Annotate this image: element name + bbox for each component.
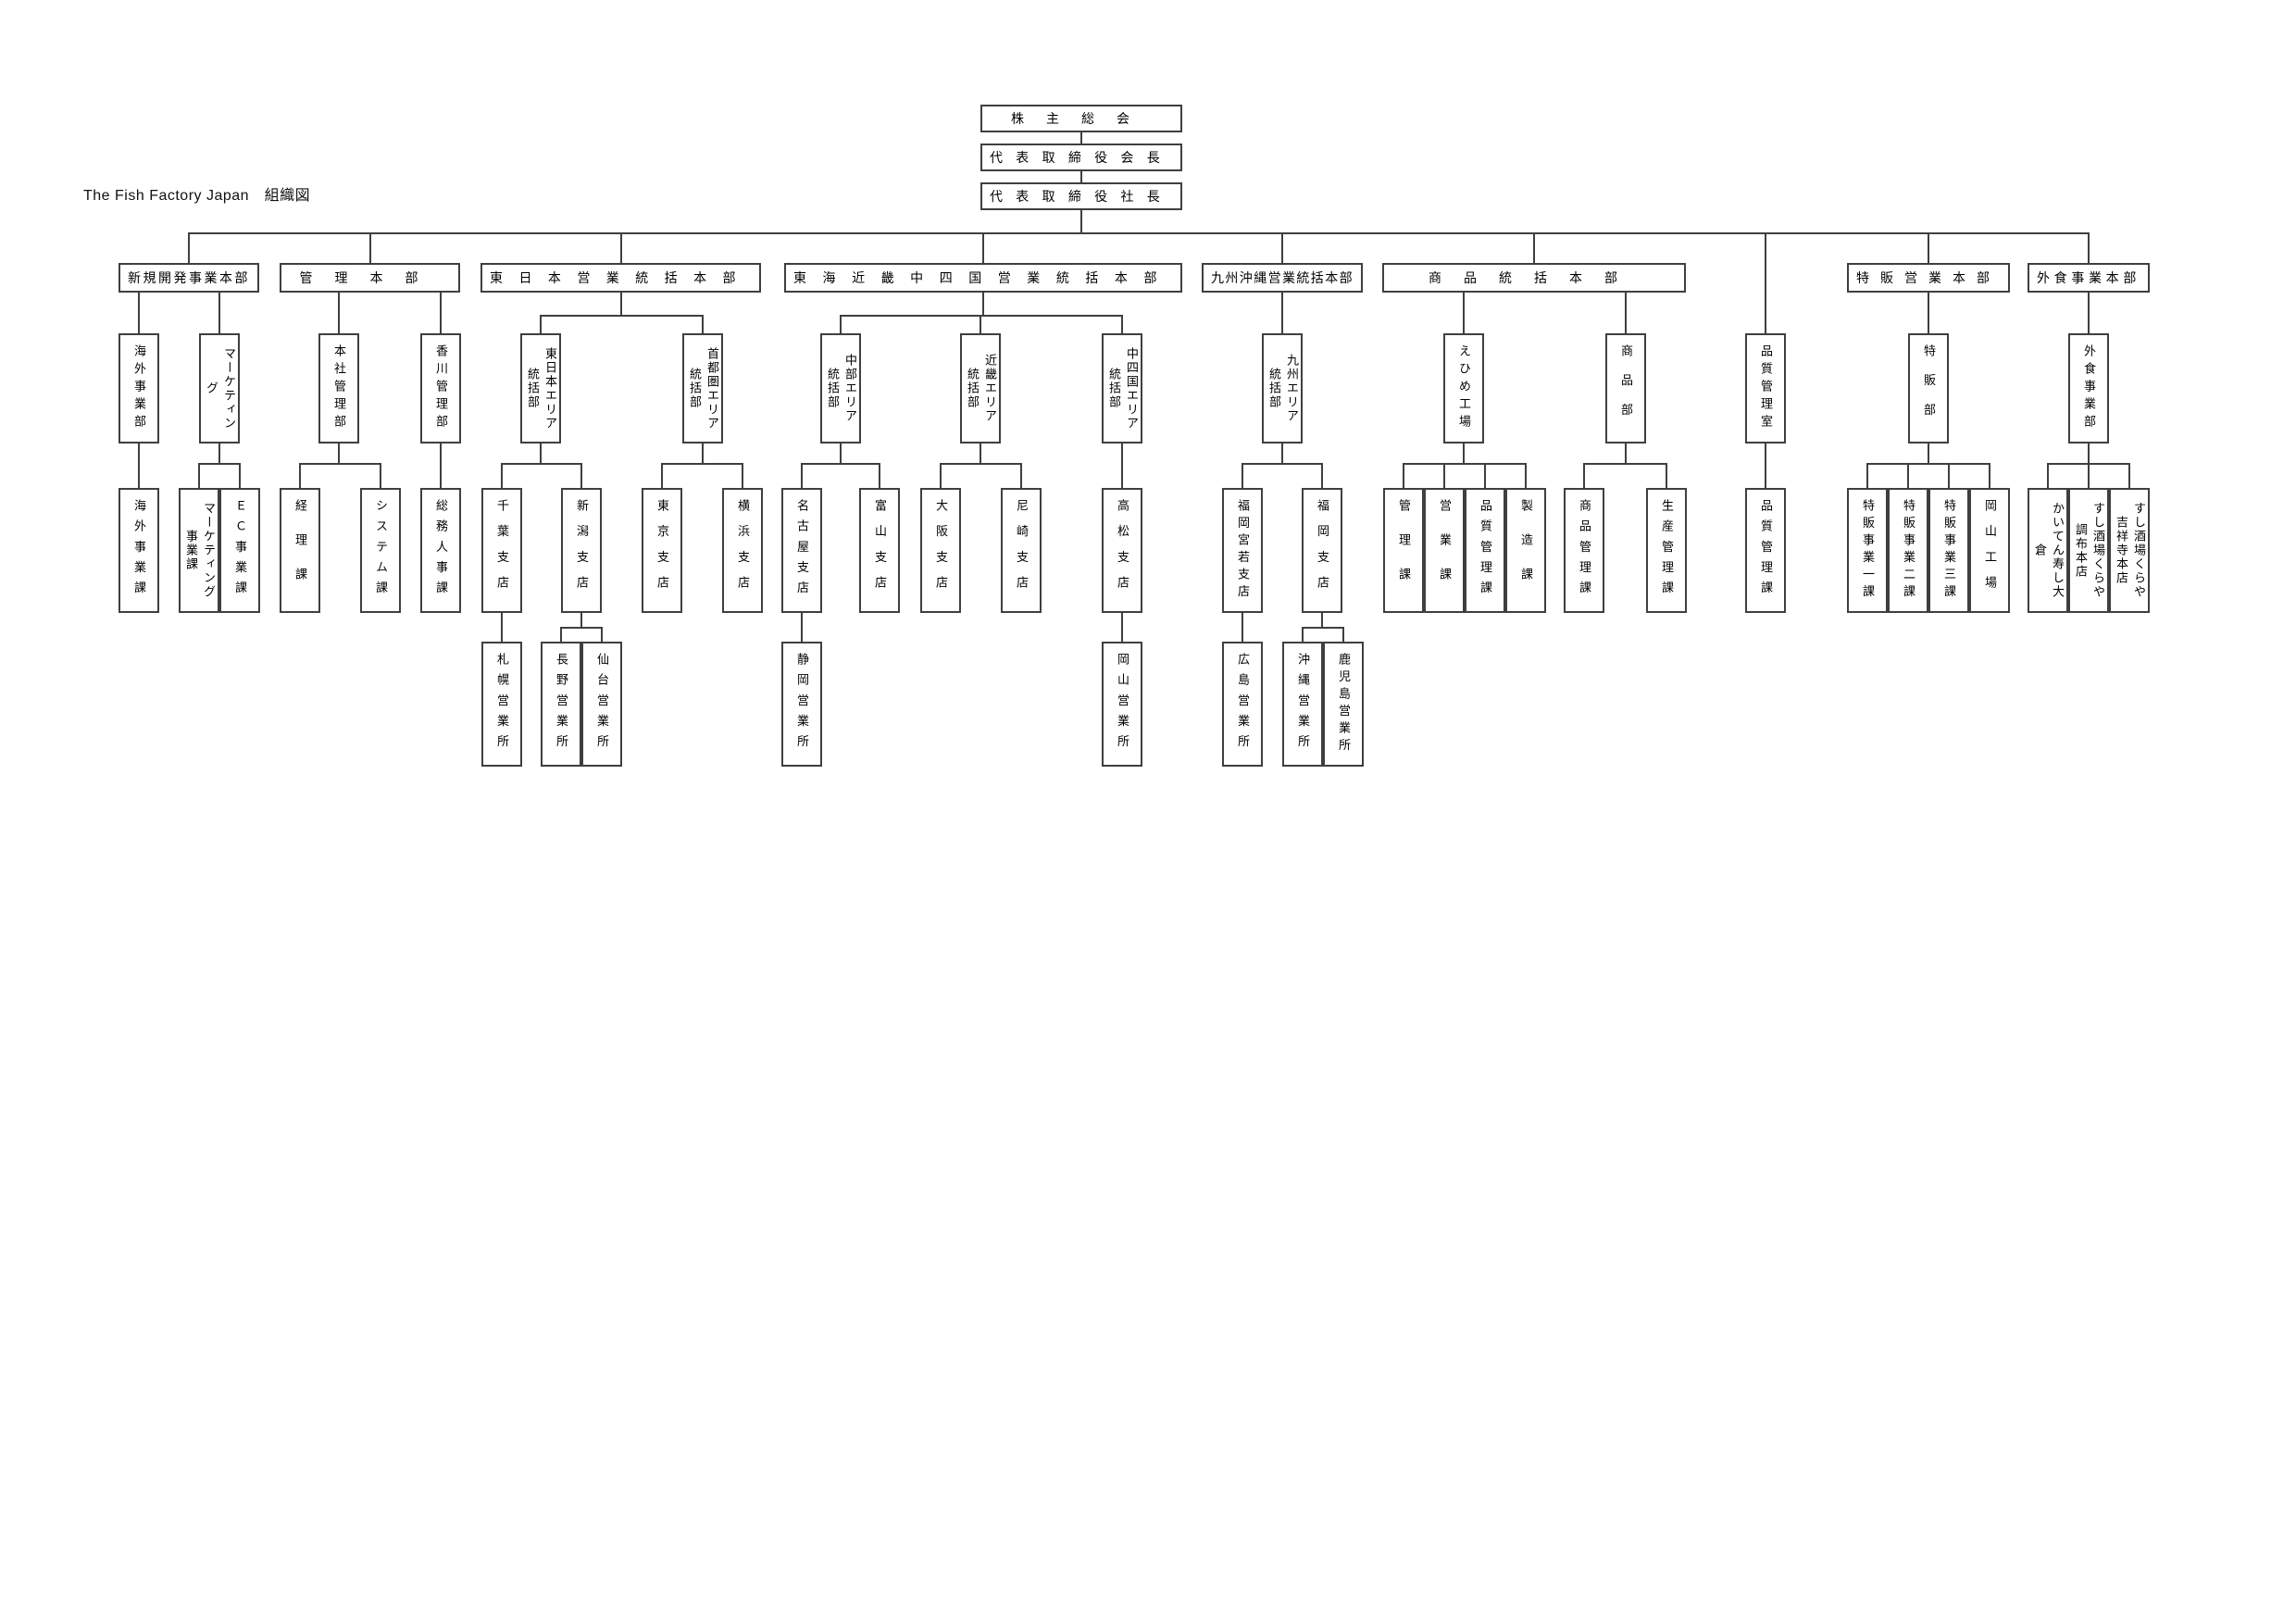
org-node-tokuhan_1ka: 特販事業一課 [1847,488,1888,613]
org-node-tokuhan_eigyo: 特販営業本部 [1847,263,2010,293]
org-node-kuraya_chofu: すし酒場くらや 調布本店 [2068,488,2109,613]
connector-line [840,443,842,464]
connector-line [299,463,381,465]
org-node-tokuhan_bu: 特販部 [1908,333,1949,443]
connector-line [1281,443,1283,464]
org-node-kaigai_ka: 海外事業課 [119,488,159,613]
connector-line [501,464,503,488]
org-node-marketing_ka: マーケティング 事業課 [179,488,219,613]
org-node-shinki: 新規開発事業本部 [119,263,259,293]
connector-line [1625,443,1627,464]
connector-line [879,464,880,488]
connector-line [1463,293,1465,333]
org-node-keiri_ka: 経理課 [280,488,320,613]
org-node-kinki_area: 近畿エリア 統括部 [960,333,1001,443]
org-node-okayama_kojo: 岡山工場 [1969,488,2010,613]
org-node-okinawa: 沖縄営業所 [1282,642,1323,767]
connector-line [1907,464,1909,488]
connector-line [2047,464,2049,488]
org-node-chubu_area: 中部エリア 統括部 [820,333,861,443]
connector-line [1242,613,1243,642]
connector-line [1625,293,1627,333]
org-node-nagoya: 名古屋支店 [781,488,822,613]
connector-line [198,463,241,465]
connector-line [620,233,622,263]
org-node-honsha_kanri: 本社管理部 [318,333,359,443]
connector-line [2088,464,2090,488]
org-node-kagawa_kanri: 香川管理部 [420,333,461,443]
org-node-sokai: 株主総会 [980,105,1182,132]
connector-line [560,628,562,642]
org-node-hinshitsu_kanri_ka: 品質管理課 [1745,488,1786,613]
connector-line [1321,464,1323,488]
connector-line [940,463,1022,465]
connector-line [1928,233,1929,263]
connector-line [801,613,803,642]
connector-line [440,293,442,333]
connector-line [188,233,190,263]
connector-line [198,464,200,488]
connector-line [580,464,582,488]
connector-line [440,443,442,488]
org-node-gaishoku_bu: 外食事業部 [2068,333,2109,443]
connector-line [980,443,981,464]
org-node-kaiten_omicho: かいてん寿し大倉 近江町店 [2028,488,2068,613]
org-node-shohin_bu: 商品部 [1605,333,1646,443]
connector-line [1080,171,1082,182]
org-node-ehime_hinshitsu_ka: 品質管理課 [1465,488,1505,613]
connector-line [560,627,603,629]
org-node-kyushu_area: 九州エリア 統括部 [1262,333,1303,443]
connector-line [1866,463,1990,465]
connector-line [801,463,880,465]
connector-line [138,443,140,488]
connector-line [620,293,622,316]
connector-line [1020,464,1022,488]
org-node-hinshitsu_shitsu: 品質管理室 [1745,333,1786,443]
org-node-kyushu_okinawa: 九州沖縄営業統括本部 [1202,263,1363,293]
connector-line [2088,233,2090,263]
connector-line [380,464,381,488]
connector-line [188,232,2090,234]
org-node-tokyo: 東京支店 [642,488,682,613]
connector-line [138,293,140,333]
connector-line [1342,628,1344,642]
connector-line [801,464,803,488]
org-node-shohin_kanri_ka: 商品管理課 [1564,488,1604,613]
connector-line [540,443,542,464]
org-node-gaishoku: 外食事業本部 [2028,263,2150,293]
connector-line [1533,233,1535,263]
connector-line [1928,443,1929,464]
connector-line [501,613,503,642]
connector-line [1403,463,1527,465]
connector-line [1403,464,1404,488]
connector-line [338,443,340,464]
connector-line [369,233,371,263]
org-node-ehime: えひめ工場 [1443,333,1484,443]
org-node-fukuoka: 福岡支店 [1302,488,1342,613]
org-node-system_ka: システム課 [360,488,401,613]
org-node-seisan_kanri_ka: 生産管理課 [1646,488,1687,613]
org-node-seizo_ka: 製造課 [1505,488,1546,613]
org-node-chiba: 千葉支店 [481,488,522,613]
org-node-niigata: 新潟支店 [561,488,602,613]
connector-line [1583,463,1667,465]
org-node-marketing_bu: マーケティング 事業部 [199,333,240,443]
org-node-toyama: 富山支店 [859,488,900,613]
connector-line [1989,464,1990,488]
connector-line [218,443,220,464]
connector-line [982,293,984,316]
org-node-osaka: 大阪支店 [920,488,961,613]
connector-line [840,315,1123,317]
connector-line [299,464,301,488]
connector-line [1281,293,1283,333]
connector-line [661,463,743,465]
connector-line [2088,443,2090,464]
org-node-ehime_eigyo_ka: 営業課 [1424,488,1465,613]
connector-line [940,464,942,488]
org-node-kagoshima: 鹿児島営業所 [1323,642,1364,767]
org-node-somu_jinji_ka: 総務人事課 [420,488,461,613]
connector-line [540,316,542,333]
connector-line [702,316,704,333]
org-chart: The Fish Factory Japan 組織図 株主総会代表取締役会長代表… [0,0,2296,1624]
connector-line [1525,464,1527,488]
connector-line [1765,443,1766,488]
org-node-sendai: 仙台営業所 [581,642,622,767]
connector-line [1443,464,1445,488]
chart-title: The Fish Factory Japan 組織図 [83,182,310,205]
connector-line [1242,464,1243,488]
connector-line [1080,210,1082,233]
org-node-hiroshima: 広島営業所 [1222,642,1263,767]
org-node-kanri: 管理本部 [280,263,460,293]
connector-line [1765,233,1766,333]
org-node-sapporo: 札幌営業所 [481,642,522,767]
org-node-shohin_tokatsu: 商品統括本部 [1382,263,1686,293]
connector-line [742,464,743,488]
org-node-kaigai_bu: 海外事業部 [119,333,159,443]
org-node-higashinihon: 東日本営業統括本部 [480,263,761,293]
connector-line [840,316,842,333]
connector-line [1080,132,1082,144]
org-node-tokuhan_3ka: 特販事業三課 [1928,488,1969,613]
org-node-tokuhan_2ka: 特販事業二課 [1888,488,1928,613]
org-node-nagano: 長野営業所 [541,642,581,767]
connector-line [702,443,704,464]
connector-line [1928,293,1929,333]
connector-line [1121,613,1123,642]
org-node-shizuoka: 静岡営業所 [781,642,822,767]
org-node-ec_ka: ＥＣ事業課 [219,488,260,613]
org-node-kaicho: 代表取締役会長 [980,144,1182,171]
org-node-amagasaki: 尼崎支店 [1001,488,1042,613]
connector-line [2088,293,2090,333]
connector-line [1302,628,1304,642]
org-node-shutoken_area: 首都圏エリア 統括部 [682,333,723,443]
connector-line [1121,443,1123,488]
connector-line [239,464,241,488]
connector-line [1121,316,1123,333]
connector-line [2128,464,2130,488]
connector-line [1242,463,1323,465]
connector-line [982,233,984,263]
connector-line [580,613,582,628]
connector-line [1666,464,1667,488]
connector-line [218,293,220,333]
org-node-fukuoka_miyawaka: 福岡宮若支店 [1222,488,1263,613]
connector-line [1583,464,1585,488]
connector-line [540,315,704,317]
org-node-kuraya_kichijoji: すし酒場くらや 吉祥寺本店 [2109,488,2150,613]
org-node-chushikoku_area: 中四国エリア 統括部 [1102,333,1142,443]
connector-line [980,316,981,333]
org-node-okayama_eigyosho: 岡山営業所 [1102,642,1142,767]
connector-line [1281,233,1283,263]
connector-line [501,463,582,465]
org-node-tokai: 東海近畿中四国営業統括本部 [784,263,1182,293]
connector-line [1484,464,1486,488]
connector-line [661,464,663,488]
org-node-yokohama: 横浜支店 [722,488,763,613]
connector-line [1302,627,1344,629]
org-node-shacho: 代表取締役社長 [980,182,1182,210]
connector-line [1866,464,1868,488]
connector-line [601,628,603,642]
org-node-takamatsu: 高松支店 [1102,488,1142,613]
connector-line [1321,613,1323,628]
org-node-ehime_kanri_ka: 管理課 [1383,488,1424,613]
connector-line [1948,464,1950,488]
connector-line [338,293,340,333]
org-node-higashinihon_area: 東日本エリア 統括部 [520,333,561,443]
connector-line [1463,443,1465,464]
